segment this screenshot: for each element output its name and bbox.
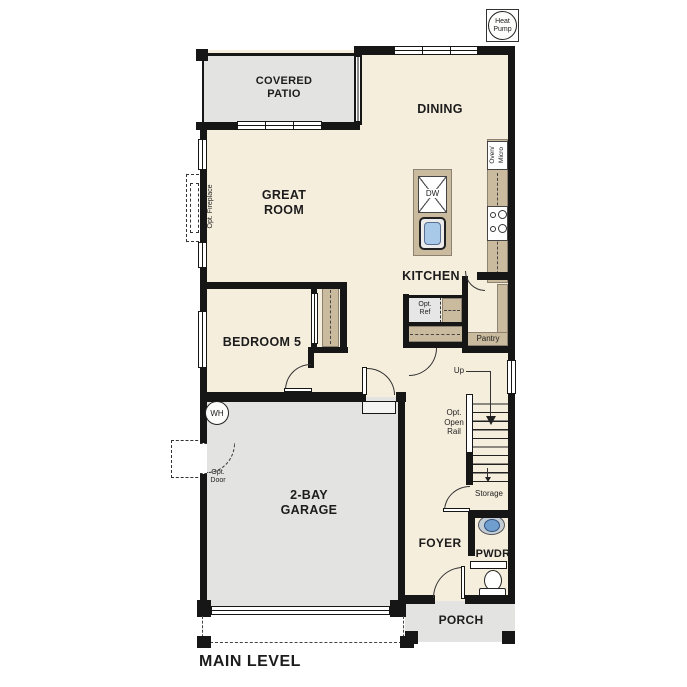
wall-kitchen bbox=[406, 295, 464, 298]
cooktop-burner-icon bbox=[498, 224, 507, 233]
room-label-covered-patio: COVERED PATIO bbox=[243, 75, 325, 101]
wall-pantry-bottom bbox=[462, 346, 515, 353]
up-arrow-line bbox=[466, 371, 491, 372]
vanity-counter bbox=[470, 561, 507, 569]
annotation-up: Up bbox=[449, 366, 469, 376]
oven-micro-label: Oven/ Micro bbox=[489, 141, 509, 169]
wall-bedroom-garage bbox=[200, 392, 366, 402]
powder-sink-basin-icon bbox=[484, 519, 500, 532]
pantry-shelf bbox=[497, 284, 508, 336]
annotation-pantry: Pantry bbox=[468, 334, 508, 344]
floor-plan: DW Oven/ Micro Opt. Ref bbox=[0, 0, 687, 687]
wall-pwdr-bottom bbox=[465, 595, 515, 604]
window-mullion bbox=[422, 46, 423, 55]
window-mullion bbox=[265, 121, 266, 130]
stair-run-tick-head-icon bbox=[485, 477, 491, 482]
room-label-garage: 2-BAY GARAGE bbox=[268, 488, 350, 518]
counter-dash-line bbox=[410, 334, 460, 335]
patio-left-edge bbox=[202, 53, 204, 125]
opt-ref-label: Opt. Ref bbox=[410, 301, 440, 318]
wall-under-rail bbox=[466, 452, 473, 485]
water-heater-icon: WH bbox=[205, 401, 229, 425]
room-label-kitchen: KITCHEN bbox=[397, 269, 465, 284]
up-arrow-line bbox=[490, 371, 491, 418]
driveway-apron-dash bbox=[210, 642, 402, 643]
wall-bedroom-top bbox=[200, 282, 347, 289]
water-heater-label: WH bbox=[210, 409, 223, 418]
garage-door-post bbox=[390, 600, 406, 617]
porch-post bbox=[405, 631, 418, 644]
dishwasher-label: DW bbox=[420, 189, 445, 198]
kitchen-sink-basin-icon bbox=[424, 222, 441, 245]
closet-sliding-door bbox=[311, 293, 318, 344]
cooktop-burner-icon bbox=[498, 210, 507, 219]
window bbox=[394, 46, 478, 55]
heat-pump-icon: Heat Pump bbox=[488, 11, 517, 40]
porch-post bbox=[502, 631, 515, 644]
plan-title: MAIN LEVEL bbox=[199, 653, 301, 671]
window bbox=[507, 360, 516, 394]
window-mullion bbox=[293, 121, 294, 130]
garage-door bbox=[211, 606, 390, 615]
room-label-pwdr: PWDR bbox=[473, 548, 513, 561]
sliding-door bbox=[355, 56, 361, 122]
window-mullion bbox=[450, 46, 451, 55]
up-arrow-head-icon bbox=[486, 416, 496, 425]
room-label-dining: DINING bbox=[408, 102, 472, 117]
apron-post bbox=[197, 636, 211, 648]
window bbox=[198, 242, 207, 268]
counter-dash-line bbox=[444, 310, 460, 311]
wall-kitchen bbox=[403, 294, 409, 348]
window bbox=[198, 139, 207, 170]
heat-pump-label: Heat Pump bbox=[493, 18, 511, 33]
wall-bedroom-right bbox=[340, 282, 347, 353]
annotation-opt-fireplace: Opt. Fireplace bbox=[207, 168, 219, 245]
room-label-bedroom5: BEDROOM 5 bbox=[213, 335, 311, 350]
annotation-opt-door: Opt. Door bbox=[204, 469, 232, 486]
cooktop-burner-icon bbox=[490, 212, 496, 218]
annotation-storage: Storage bbox=[467, 489, 511, 499]
wall-closet-bottom bbox=[308, 347, 348, 353]
window bbox=[237, 121, 322, 130]
closet-rod-dash bbox=[330, 290, 331, 344]
door-leaf bbox=[284, 388, 312, 392]
wall-storage-pwdr bbox=[468, 510, 515, 518]
front-door-leaf bbox=[461, 566, 465, 599]
cooktop-burner-icon bbox=[490, 226, 496, 232]
room-label-great-room: GREAT ROOM bbox=[252, 188, 316, 218]
room-label-foyer: FOYER bbox=[414, 536, 466, 550]
wall-kitchen bbox=[409, 322, 464, 326]
door-leaf bbox=[443, 508, 470, 512]
patio-top-edge bbox=[202, 53, 360, 56]
annotation-opt-open-rail: Opt. Open Rail bbox=[440, 408, 468, 437]
opt-fireplace-inner-box bbox=[190, 183, 199, 233]
garage-door-post bbox=[197, 600, 211, 617]
room-label-porch: PORCH bbox=[430, 613, 492, 627]
opt-door-box bbox=[171, 440, 203, 478]
wall-garage-right bbox=[398, 392, 405, 610]
garage-step bbox=[362, 401, 396, 414]
window bbox=[198, 311, 207, 368]
wall-right bbox=[508, 46, 515, 604]
door-leaf bbox=[362, 367, 367, 395]
